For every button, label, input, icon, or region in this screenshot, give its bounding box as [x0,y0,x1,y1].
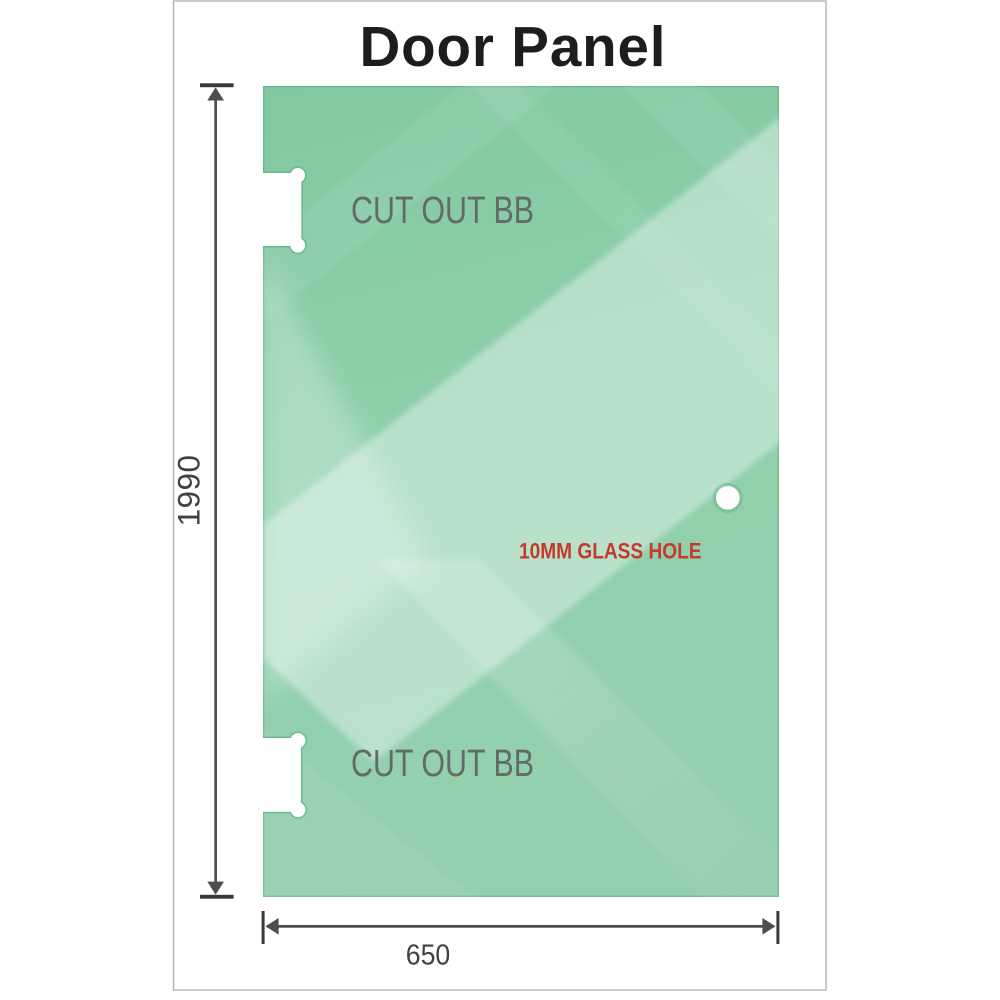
svg-text:CUT OUT BB: CUT OUT BB [351,743,534,785]
svg-text:Door Panel: Door Panel [360,15,666,78]
svg-text:10MM GLASS HOLE: 10MM GLASS HOLE [519,539,702,564]
svg-text:650: 650 [406,940,451,972]
svg-text:1990: 1990 [171,455,207,526]
svg-text:CUT OUT BB: CUT OUT BB [351,190,534,232]
